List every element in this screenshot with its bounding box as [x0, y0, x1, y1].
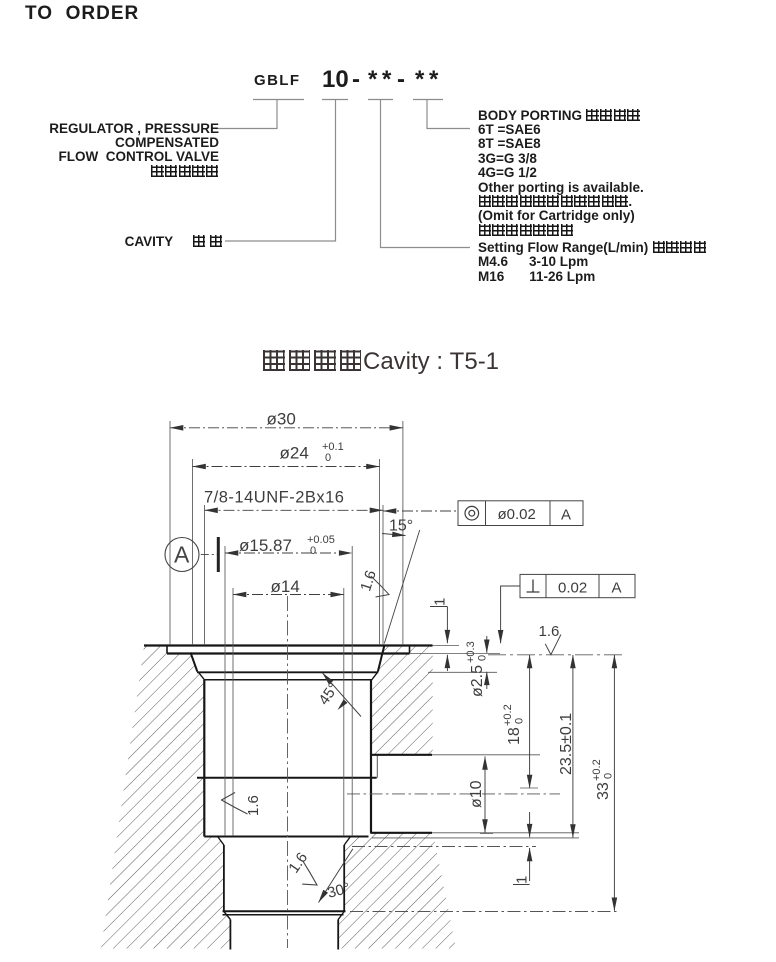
svg-text:+0.2: +0.2: [591, 759, 603, 781]
svg-text:ø14: ø14: [271, 577, 300, 596]
svg-text:A: A: [174, 542, 190, 568]
svg-text:+0.2: +0.2: [502, 704, 514, 726]
svg-text:0: 0: [325, 452, 331, 464]
svg-text:0: 0: [603, 773, 615, 779]
svg-text:1.6: 1.6: [245, 795, 262, 816]
svg-text:0: 0: [310, 545, 316, 557]
svg-text:A: A: [612, 580, 622, 597]
svg-text:45°: 45°: [315, 680, 342, 708]
svg-text:0: 0: [514, 718, 526, 724]
svg-text:1.6: 1.6: [285, 849, 311, 876]
svg-text:33: 33: [595, 782, 612, 800]
svg-text:ø2.5: ø2.5: [469, 665, 486, 697]
svg-text:ø24: ø24: [280, 444, 309, 463]
svg-text:1: 1: [432, 598, 449, 606]
svg-text:ø10: ø10: [468, 780, 485, 808]
svg-text:ø30: ø30: [267, 410, 296, 429]
svg-text:+0.3: +0.3: [465, 641, 477, 663]
svg-text:A: A: [561, 507, 571, 524]
svg-text:1.6: 1.6: [357, 568, 380, 593]
svg-text:7/8-14UNF-2Bx16: 7/8-14UNF-2Bx16: [204, 489, 344, 507]
svg-text:0: 0: [477, 655, 489, 661]
svg-text:0.02: 0.02: [558, 580, 587, 597]
svg-text:ø0.02: ø0.02: [498, 506, 536, 523]
svg-text:23.5±0.1: 23.5±0.1: [558, 713, 575, 775]
svg-text:1: 1: [514, 876, 531, 884]
svg-text:ø15.87: ø15.87: [239, 536, 292, 555]
svg-text:1.6: 1.6: [539, 623, 560, 640]
svg-text:18: 18: [506, 727, 523, 745]
svg-text:15°: 15°: [389, 518, 413, 535]
